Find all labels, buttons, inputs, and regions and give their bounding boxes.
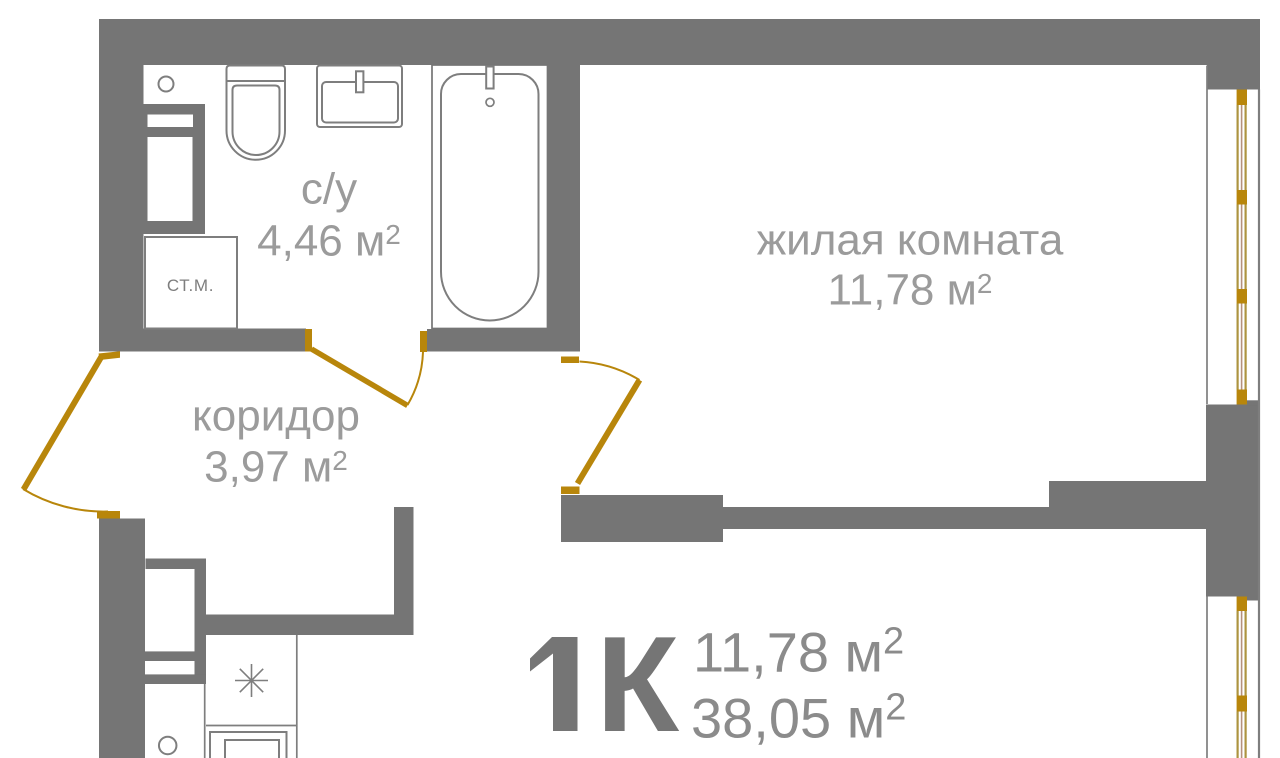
svg-text:СТ.М.: СТ.М. bbox=[167, 276, 214, 295]
svg-text:38,05 м2: 38,05 м2 bbox=[691, 687, 906, 750]
svg-text:3,97 м2: 3,97 м2 bbox=[204, 443, 348, 492]
svg-text:4,46 м2: 4,46 м2 bbox=[257, 217, 401, 266]
svg-text:К: К bbox=[596, 608, 680, 758]
svg-text:11,78 м2: 11,78 м2 bbox=[693, 621, 904, 684]
svg-text:коридор: коридор bbox=[192, 392, 360, 441]
svg-text:с/у: с/у bbox=[301, 165, 357, 214]
svg-text:жилая комната: жилая комната bbox=[757, 216, 1064, 265]
svg-text:11,78 м2: 11,78 м2 bbox=[828, 266, 993, 315]
